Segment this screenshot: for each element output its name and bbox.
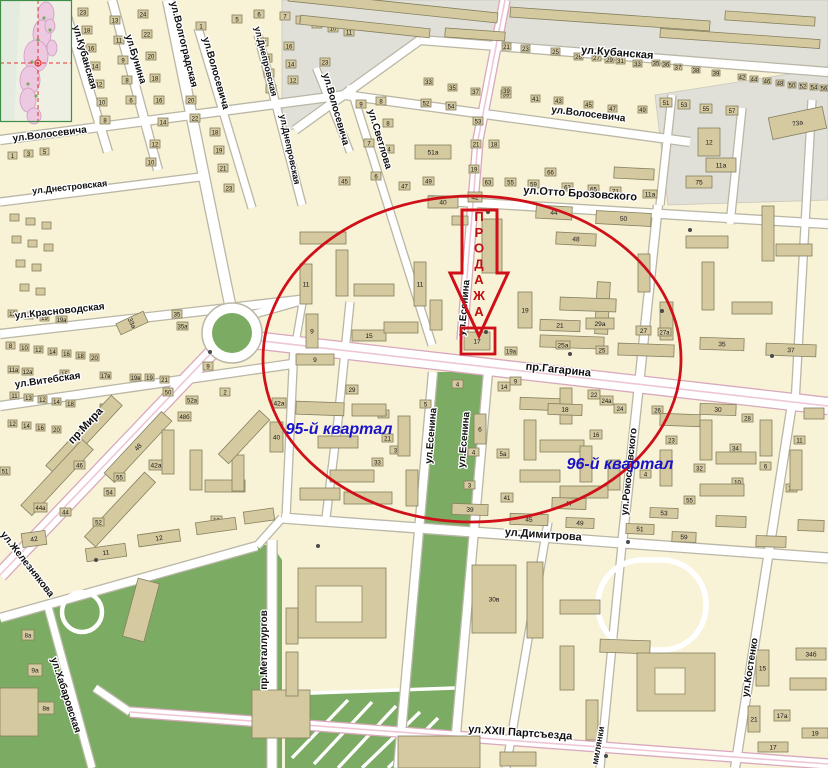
building-number: 54 <box>448 104 455 110</box>
building: 12 <box>150 140 160 148</box>
building <box>16 260 25 267</box>
building <box>732 302 772 314</box>
building-number: 13 <box>25 396 32 402</box>
building: 17в <box>100 372 111 380</box>
building: 66 <box>545 168 556 176</box>
building: 12 <box>38 396 47 404</box>
building: 29 <box>346 385 358 394</box>
building: 10 <box>97 98 107 106</box>
building <box>32 264 41 271</box>
building-number: 56 <box>821 86 828 92</box>
building-number: 12 <box>35 348 42 354</box>
building: 14 <box>286 60 296 68</box>
building: 33 <box>372 458 383 466</box>
building: 49 <box>638 106 647 114</box>
building: 52 <box>421 99 431 107</box>
building: 27 <box>636 326 651 335</box>
building-number: 14 <box>288 62 295 68</box>
building: 28 <box>742 414 753 422</box>
building-number: 48 <box>777 81 784 87</box>
building-number: 55 <box>507 180 514 186</box>
poi-dot <box>626 540 630 544</box>
building <box>700 420 712 460</box>
building <box>700 484 744 496</box>
building: 8 <box>383 119 393 127</box>
building-number: 53 <box>475 119 482 125</box>
building: 18 <box>66 400 75 408</box>
building-number: 14 <box>160 120 167 126</box>
building: 25а <box>556 341 570 349</box>
building <box>406 470 418 506</box>
building-number: 24 <box>140 12 147 18</box>
building <box>560 297 616 312</box>
building: 24 <box>614 404 626 413</box>
building <box>384 322 418 333</box>
building-number: 40 <box>273 434 281 441</box>
building-number: 21 <box>161 378 168 384</box>
building: 6 <box>474 414 486 444</box>
building-number: 11 <box>796 438 803 444</box>
building: 41 <box>501 493 513 502</box>
building: 14 <box>158 118 168 126</box>
building: 50 <box>163 388 173 396</box>
building: 55 <box>684 496 695 504</box>
poi-dot <box>94 558 98 562</box>
building: 53 <box>678 100 690 109</box>
building-courtyard <box>316 586 362 622</box>
building: 15 <box>352 330 386 341</box>
roundabout-green <box>212 313 252 353</box>
building: 11 <box>794 436 805 444</box>
building: 22 <box>142 30 152 38</box>
building <box>618 343 674 357</box>
building-number: 35 <box>718 341 726 348</box>
building: 44 <box>750 76 758 83</box>
building-number: 49 <box>425 179 432 185</box>
building-number: 9 <box>310 328 314 335</box>
building <box>560 646 574 690</box>
building-number: 37 <box>675 65 682 71</box>
building-number: 18 <box>561 407 569 414</box>
building-number: 13 <box>112 18 119 24</box>
building-number: 19в <box>131 376 141 382</box>
building-number: 21 <box>503 45 510 51</box>
building: 16 <box>284 42 294 50</box>
building-number: 12 <box>155 535 164 543</box>
building: 23 <box>320 58 330 66</box>
building: 13 <box>110 16 120 24</box>
building-number: 29 <box>349 388 356 394</box>
building: 20 <box>90 354 99 362</box>
building-number: 14 <box>53 400 60 406</box>
building <box>398 416 410 456</box>
building: 12 <box>34 346 43 354</box>
building: 6 <box>126 96 136 104</box>
building: 23 <box>521 45 530 53</box>
building-number: 19 <box>471 167 478 173</box>
building: 51 <box>626 524 654 535</box>
building: 44 <box>60 508 71 516</box>
building: 22 <box>190 114 200 122</box>
building: 35 <box>652 60 660 67</box>
building-number: 49 <box>576 520 584 527</box>
building <box>614 167 655 180</box>
building: 25 <box>596 346 608 354</box>
building <box>354 284 394 296</box>
building-number: 42а <box>150 462 161 469</box>
city-map[interactable]: 2318161412108131198624222018161412101351… <box>0 0 828 768</box>
building-number: 52 <box>800 84 807 90</box>
poi-dot <box>484 330 488 334</box>
building-number: 23 <box>80 10 87 16</box>
building-number: 16 <box>286 44 293 50</box>
inset-location-dot <box>37 62 39 64</box>
building: 5 <box>40 148 49 156</box>
building: 4 <box>452 380 463 388</box>
building: 9 <box>203 362 213 370</box>
building <box>26 218 35 225</box>
building: 9 <box>510 377 521 385</box>
inset-overview-map <box>0 0 72 124</box>
building-number: 23 <box>226 186 233 192</box>
building-number: 16 <box>593 433 600 439</box>
building: 3 <box>464 481 475 489</box>
building-number: 16 <box>156 98 163 104</box>
building-number: 11 <box>11 394 18 400</box>
building: 55 <box>700 104 712 113</box>
building-number: 12 <box>39 398 46 404</box>
building-number: 11 <box>417 281 424 288</box>
building: 49 <box>423 177 434 185</box>
building-number: 49 <box>639 108 646 114</box>
building-number: 63 <box>485 180 492 186</box>
building: 54 <box>446 102 456 110</box>
building-number: 54 <box>106 490 113 496</box>
building-number: 9а <box>31 667 39 674</box>
building-number: 6 <box>478 426 482 433</box>
building <box>0 688 38 736</box>
building-number: 27 <box>640 328 648 335</box>
building: 11а <box>643 190 657 198</box>
building <box>398 736 480 768</box>
building-number: 9 <box>313 357 317 364</box>
building-number: 12 <box>9 422 16 428</box>
poi-dot <box>660 309 664 313</box>
building-number: 51 <box>2 469 9 475</box>
building: 59 <box>672 532 696 543</box>
building-number: 75 <box>695 179 703 186</box>
building-number: 46 <box>764 79 771 85</box>
building-number: 19а <box>506 349 517 355</box>
building: 5 <box>420 400 431 408</box>
building-number: 22 <box>591 393 598 399</box>
building: 12 <box>8 420 17 428</box>
building: 33 <box>633 60 642 68</box>
building: 7 <box>280 12 290 20</box>
building: 48 <box>556 232 597 246</box>
building-number: 48 <box>572 236 580 243</box>
building <box>162 430 174 474</box>
building <box>760 420 772 456</box>
building <box>804 408 824 419</box>
poi-dot <box>568 352 572 356</box>
building-number: 38 <box>693 68 700 74</box>
building-number: 51а <box>427 149 438 156</box>
building-number: 51 <box>663 101 670 107</box>
building: 12а <box>22 368 33 376</box>
building-courtyard <box>655 668 685 694</box>
building: 18 <box>548 403 582 415</box>
building: 7 <box>364 139 374 147</box>
building <box>12 236 21 243</box>
building: 53 <box>473 117 483 125</box>
building: 52 <box>799 83 807 90</box>
building-number: 48б <box>179 415 190 421</box>
building-number: 8в <box>42 705 50 712</box>
building-number: 17а <box>776 713 787 720</box>
building-number: 23 <box>668 438 675 444</box>
building: 25 <box>551 48 560 56</box>
building: 46 <box>763 78 771 85</box>
building: 6 <box>254 10 264 18</box>
building: 11а <box>8 366 19 374</box>
building-number: 50 <box>165 390 172 396</box>
building: 19в <box>130 374 141 382</box>
building-number: 39 <box>503 89 510 95</box>
building-number: 15 <box>365 333 373 340</box>
building <box>430 300 442 330</box>
building: 10 <box>146 158 156 166</box>
building-number: 10 <box>99 100 106 106</box>
building: 8 <box>376 97 386 105</box>
building-number: 18 <box>212 130 219 136</box>
building-number: 43 <box>555 99 562 105</box>
building-number: 18 <box>77 354 84 360</box>
building <box>482 219 502 273</box>
building: 8а <box>22 630 34 640</box>
building <box>776 244 812 256</box>
building <box>540 335 604 349</box>
building: 14 <box>52 398 61 406</box>
building: 16 <box>62 350 71 358</box>
building: 24 <box>138 10 148 18</box>
building: 35 <box>700 337 744 351</box>
building-number: 51 <box>636 526 644 533</box>
building-number: 37 <box>472 90 479 96</box>
building-number: 55 <box>703 107 710 113</box>
building: 32 <box>694 464 705 472</box>
building: 3 <box>24 150 33 158</box>
building: 11 <box>114 36 124 44</box>
building <box>190 450 202 490</box>
building: 9а <box>28 664 42 676</box>
building: 12 <box>288 76 298 84</box>
map-base-layer: 2318161412108131198624222018161412101351… <box>0 0 828 768</box>
building: 34 <box>730 444 741 452</box>
building-number: 19 <box>216 148 223 154</box>
building: 19 <box>802 728 828 738</box>
building-number: 34б <box>805 650 816 658</box>
building-number: 16 <box>37 426 44 432</box>
building: 63 <box>483 178 493 186</box>
inset-green-dot <box>26 82 29 85</box>
building-number: 11 <box>346 30 353 36</box>
building-number: 29а <box>594 321 605 328</box>
building <box>286 652 298 696</box>
building: 17 <box>758 742 788 752</box>
building-number: 12 <box>705 139 713 146</box>
building-number: 54 <box>811 85 818 91</box>
building-number: 18 <box>491 142 498 148</box>
building: 48б <box>178 412 191 421</box>
poi-dot <box>208 350 212 354</box>
building: 29а <box>586 318 614 329</box>
building-number: 21 <box>750 716 758 723</box>
building-number: 20 <box>188 98 195 104</box>
building-number: 24 <box>617 407 624 413</box>
building-number: 55 <box>686 498 693 504</box>
building-number: 28 <box>744 416 751 422</box>
building: 46 <box>74 461 85 469</box>
building-number: 55 <box>116 475 123 481</box>
building-number: 66 <box>547 170 554 176</box>
building <box>232 455 244 491</box>
building-number: 34 <box>732 446 739 452</box>
building-number: 33 <box>425 80 432 86</box>
building: 30 <box>700 403 736 415</box>
building: 56 <box>820 85 828 92</box>
building-number: 21 <box>220 166 227 172</box>
building: 42 <box>21 530 47 547</box>
building <box>560 600 600 614</box>
building: 23 <box>666 436 677 444</box>
building-number: 14 <box>501 385 508 391</box>
building: 21 <box>748 706 760 732</box>
building: 19 <box>214 146 224 154</box>
building-number: 18 <box>152 76 159 82</box>
building <box>44 244 53 251</box>
building: 35а <box>177 322 188 330</box>
building <box>452 216 468 225</box>
building: 47 <box>399 182 410 190</box>
building <box>524 420 536 460</box>
building: 14 <box>22 422 31 430</box>
poi-dot <box>316 544 320 548</box>
building: 34б <box>796 648 826 660</box>
building <box>798 520 824 532</box>
building-number: 8а <box>25 633 32 639</box>
building: 51 <box>660 98 672 107</box>
building: 4 <box>468 448 479 456</box>
building: 20 <box>186 96 196 104</box>
building: 2 <box>220 388 230 396</box>
building: 6 <box>371 172 381 180</box>
building-number: 10 <box>148 160 155 166</box>
building-number: 20 <box>148 54 155 60</box>
building-number: 24а <box>601 399 612 405</box>
building: 19а <box>505 347 517 355</box>
building-number: 25а <box>557 342 568 349</box>
building-number: 10 <box>21 346 28 352</box>
building <box>20 284 29 291</box>
building-number: 35 <box>174 312 181 318</box>
building: 23 <box>78 8 88 16</box>
building <box>527 562 543 638</box>
building-number: 53 <box>660 510 668 517</box>
building: 9 <box>296 354 334 365</box>
building-number: 39 <box>713 71 720 77</box>
building: 39 <box>452 503 488 515</box>
building: 11а <box>706 158 736 172</box>
building-number: 12 <box>152 142 159 148</box>
building: 42 <box>738 74 746 81</box>
building-number: 18 <box>84 28 91 34</box>
building: 21 <box>160 376 169 384</box>
building <box>336 250 348 296</box>
building: 39 <box>502 87 511 95</box>
building-number: 14 <box>23 424 30 430</box>
building-number: 46 <box>76 463 83 469</box>
building <box>252 690 310 738</box>
building: 51а <box>415 145 451 159</box>
building-number: 19 <box>521 307 529 314</box>
street-label: пр.Металлургов <box>259 610 270 690</box>
building: 14 <box>498 382 510 391</box>
building <box>540 440 584 452</box>
building: 17а <box>774 710 790 721</box>
building: 44а <box>34 503 47 512</box>
building-number: 33 <box>634 62 641 68</box>
building <box>300 488 340 500</box>
building: 9 <box>306 314 318 348</box>
building <box>716 515 746 527</box>
building: 41 <box>531 95 540 103</box>
building-number: 36 <box>663 62 670 68</box>
building <box>762 206 774 261</box>
building-number: 30 <box>714 407 722 414</box>
building-number: 19а <box>56 318 67 324</box>
building-number: 42 <box>739 75 746 81</box>
building-number: 17 <box>769 744 777 751</box>
building-number: 23 <box>322 60 329 66</box>
building: 18 <box>489 140 499 148</box>
building: 50 <box>596 211 652 227</box>
building-number: 50 <box>789 83 796 89</box>
quarter-label-95: 95-й квартал <box>286 421 393 438</box>
building: 22 <box>588 390 600 399</box>
building-number: 35а <box>177 324 188 330</box>
building-number: 47 <box>401 184 408 190</box>
poi-dot <box>688 228 692 232</box>
building-number: 11 <box>303 281 310 288</box>
building <box>296 401 344 416</box>
building <box>520 470 560 482</box>
building-number: 12а <box>22 370 33 376</box>
building-number: 52 <box>95 520 102 526</box>
building-number: 20 <box>53 428 60 434</box>
building-number: 11а <box>716 162 727 169</box>
building <box>28 240 37 247</box>
building: 6 <box>760 462 771 470</box>
building: 11 <box>300 264 312 304</box>
building-number: 35 <box>653 61 660 67</box>
building <box>686 236 728 248</box>
building-number: 50 <box>620 216 628 223</box>
building <box>600 639 650 654</box>
building: 52 <box>93 518 104 526</box>
building-number: 44 <box>751 77 758 83</box>
building-number: 42 <box>30 536 39 544</box>
